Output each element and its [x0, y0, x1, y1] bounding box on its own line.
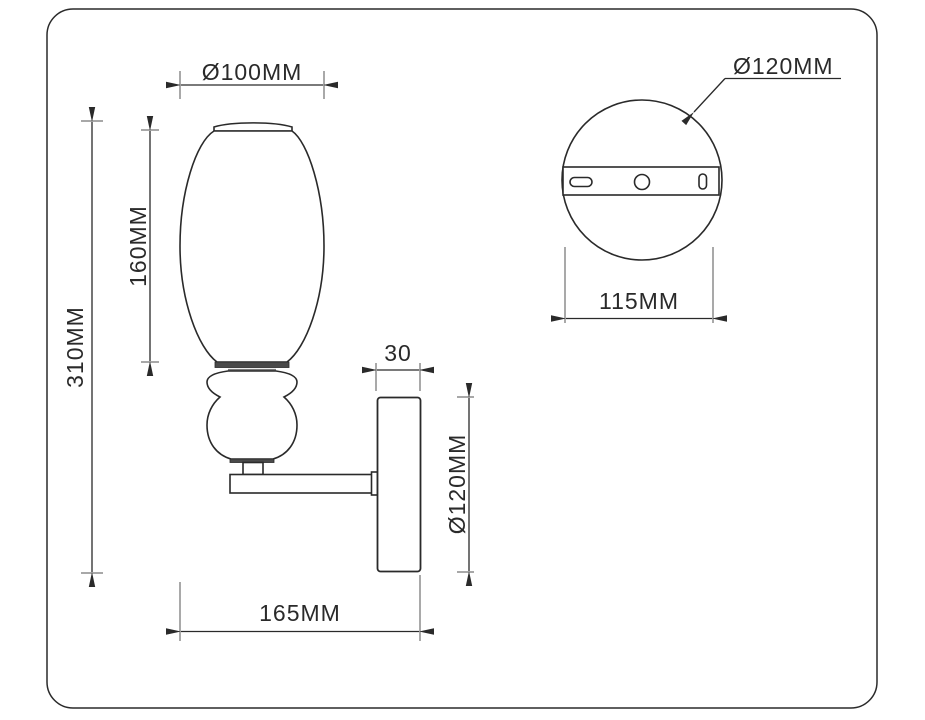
cable-hole — [635, 175, 650, 190]
wall-plate-side — [378, 398, 421, 572]
dim-shade-diameter: Ø100MM — [180, 59, 324, 99]
dim-backplate-diameter-back: Ø120MM — [694, 53, 841, 112]
dim-label-backplate-diameter-back: Ø120MM — [733, 53, 834, 79]
mounting-slot-left — [570, 178, 592, 187]
dim-total-height: 310MM — [62, 121, 103, 573]
dim-shade-height: 160MM — [125, 130, 159, 362]
back-view: Ø120MM 115MM — [562, 53, 841, 323]
dim-label-mounting-width: 115MM — [599, 288, 679, 314]
leader-line — [694, 79, 725, 113]
shade-bottom-band — [215, 362, 289, 368]
lamp-dimension-drawing: Ø100MM 310MM 160MM 30 Ø120MM — [0, 0, 925, 720]
dim-label-shade-diameter: Ø100MM — [202, 59, 303, 85]
dim-label-shade-height: 160MM — [125, 205, 151, 287]
mounting-arm — [230, 475, 372, 494]
dim-total-depth: 165MM — [180, 575, 420, 641]
dim-backplate-depth: 30 — [376, 340, 420, 391]
shade-top-band — [214, 123, 292, 131]
side-view: Ø100MM 310MM 160MM 30 Ø120MM — [62, 59, 474, 641]
dim-backplate-diameter-side: Ø120MM — [444, 397, 474, 572]
glass-shade-outline — [180, 131, 324, 362]
lamp-holder-neck — [243, 463, 263, 475]
mounting-slot-right — [699, 174, 707, 189]
dim-label-total-depth: 165MM — [259, 600, 341, 626]
technical-drawing-page: Ø100MM 310MM 160MM 30 Ø120MM — [0, 0, 925, 720]
dim-label-total-height: 310MM — [62, 306, 88, 388]
drawing-border — [47, 9, 877, 708]
dim-label-backplate-diameter-side: Ø120MM — [444, 434, 470, 535]
diffuser-outline — [207, 371, 297, 459]
dim-label-backplate-depth: 30 — [384, 340, 412, 366]
